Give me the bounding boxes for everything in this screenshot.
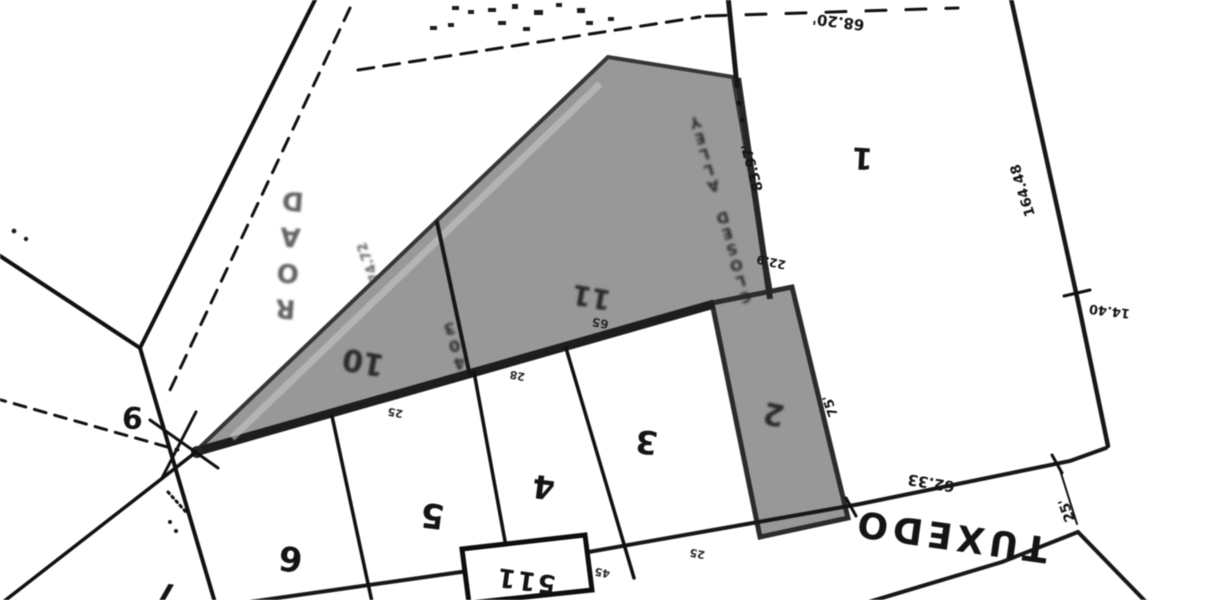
cross-street-corner <box>1078 532 1146 600</box>
dim-25ft-cross: 25' <box>1056 496 1079 524</box>
survey-dot <box>168 520 172 524</box>
dim-68-20: 68.20' <box>811 10 865 34</box>
plat-map-drawing: 6 5 4 3 7 9 10 11 2 1 511 TUXEDO ROAD CL… <box>0 0 1220 600</box>
lot-9-label: 9 <box>121 398 144 434</box>
lot-7-label: 7 <box>155 575 179 600</box>
dim-tick-25w: 25 <box>387 405 404 420</box>
road-edge-line-bend <box>0 252 140 348</box>
lot-line-65 <box>332 416 372 600</box>
survey-dot <box>174 529 178 533</box>
road-dashed-line-lower <box>0 398 178 450</box>
dim-65: 65 <box>591 315 610 332</box>
lot-6-label: 6 <box>276 537 304 580</box>
dim-tick-28: 28 <box>509 368 526 383</box>
lot-5-label: 5 <box>418 494 446 537</box>
dim-14-40: 14.40 <box>1088 301 1131 321</box>
dim-164-48: 164.48 <box>1008 162 1039 218</box>
street-label-tuxedo: TUXEDO <box>850 501 1050 569</box>
street-label-road: ROAD <box>273 185 305 324</box>
dim-74-72: 74.72 <box>355 240 384 284</box>
dim-tick-25e: 25 <box>689 546 706 561</box>
survey-dot <box>736 100 741 105</box>
lot-4-label: 4 <box>530 467 557 507</box>
survey-dot <box>740 118 744 122</box>
lot-3-label: 3 <box>633 422 660 462</box>
lot-line-54 <box>474 372 505 541</box>
lot1-top-line <box>728 0 737 86</box>
lot-1-label: 1 <box>851 139 874 175</box>
lot-11-label: 11 <box>569 278 613 317</box>
lot-line-67 <box>140 348 216 600</box>
plat-map-scan: 6 5 4 3 7 9 10 11 2 1 511 TUXEDO ROAD CL… <box>0 0 1220 600</box>
lot-10-label: 10 <box>340 340 387 382</box>
dim-tick-45: 45 <box>594 565 611 580</box>
east-boundary-line <box>1010 0 1108 446</box>
